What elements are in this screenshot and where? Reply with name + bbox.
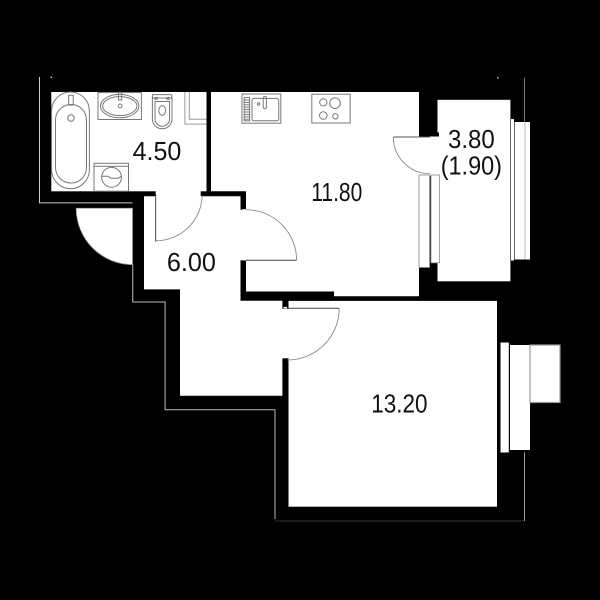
svg-text:13.20: 13.20 — [371, 388, 427, 418]
svg-text:11.80: 11.80 — [311, 177, 362, 207]
svg-text:(1.90): (1.90) — [441, 150, 502, 180]
svg-text:4.50: 4.50 — [133, 136, 182, 166]
svg-text:6.00: 6.00 — [167, 247, 216, 277]
